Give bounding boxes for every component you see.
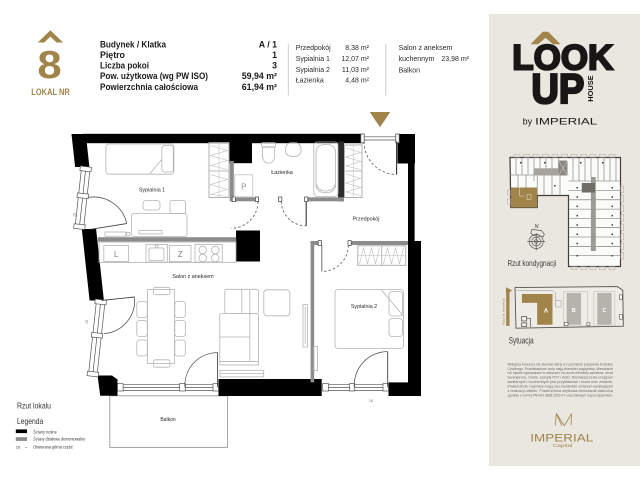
- svg-text:Wjazd ul. Rybowicka: Wjazd ul. Rybowicka: [501, 298, 505, 325]
- svg-text:zgodnie z normą PN-ISO 9836:20: zgodnie z normą PN-ISO 9836:2022-07 oraz…: [508, 393, 614, 397]
- svg-text:Rzut kondygnacji: Rzut kondygnacji: [508, 258, 557, 268]
- svg-text:UP: UP: [531, 65, 584, 112]
- svg-text:nie będzie wyposażone w widocz: nie będzie wyposażone w widoczne na rzuc…: [508, 371, 614, 375]
- svg-text:11,03 m²: 11,03 m²: [342, 67, 370, 74]
- svg-text:Sypialnia 2: Sypialnia 2: [296, 67, 330, 74]
- svg-text:8: 8: [37, 43, 61, 86]
- svg-text:Łazienka: Łazienka: [271, 170, 293, 176]
- svg-text:N: N: [535, 224, 539, 230]
- svg-text:Piętro: Piętro: [100, 50, 126, 60]
- svg-text:16: 16: [16, 445, 21, 450]
- svg-text:HOUSE: HOUSE: [588, 75, 595, 102]
- svg-text:Przedpokój: Przedpokój: [353, 217, 380, 223]
- svg-text:Przedpokój: Przedpokój: [296, 45, 331, 52]
- svg-text:Cywilnego. Przedstawione rzuty: Cywilnego. Przedstawione rzuty mają char…: [508, 367, 614, 371]
- svg-text:Budynek / Klatka: Budynek / Klatka: [100, 39, 166, 49]
- svg-text:4,48 m²: 4,48 m²: [345, 78, 369, 85]
- svg-text:Sypialnia 1: Sypialnia 1: [139, 188, 165, 194]
- svg-text:Sypialnia 2: Sypialnia 2: [351, 304, 377, 310]
- svg-text:1: 1: [272, 50, 277, 60]
- svg-text:Rzut lokalu: Rzut lokalu: [17, 400, 51, 410]
- svg-text:16: 16: [72, 213, 76, 218]
- svg-text:sanitarnych i kuchennych jest: sanitarnych i kuchennych jest przykładow…: [508, 380, 614, 384]
- svg-text:Z: Z: [178, 250, 183, 259]
- svg-text:IMPERIAL: IMPERIAL: [535, 116, 597, 126]
- svg-text:Niniejsza broszura nie stanowi: Niniejsza broszura nie stanowi oferty w …: [508, 362, 614, 366]
- svg-text:Liczba pokoi: Liczba pokoi: [100, 61, 149, 71]
- svg-text:C: C: [602, 308, 606, 314]
- svg-text:Legenda: Legenda: [17, 416, 43, 426]
- svg-text:Salon z aneksem: Salon z aneksem: [172, 274, 214, 280]
- svg-text:Balkon: Balkon: [399, 68, 421, 75]
- svg-text:Otwierana górna część: Otwierana górna część: [33, 445, 73, 450]
- svg-text:wewnętrzne, meble, sprzęty RTV: wewnętrzne, meble, sprzęty RTV i AGD. Ro…: [508, 376, 614, 380]
- svg-text:z realizacji obiektu. Powierzc: z realizacji obiektu. Powierzchnia użytk…: [508, 389, 614, 393]
- svg-text:L: L: [114, 250, 119, 259]
- svg-text:Sytuacja: Sytuacja: [509, 336, 534, 347]
- svg-text:Pow. użytkowa (wg PW ISO): Pow. użytkowa (wg PW ISO): [100, 71, 208, 81]
- svg-text:16: 16: [85, 320, 89, 325]
- svg-text:61,94 m²: 61,94 m²: [242, 82, 277, 92]
- svg-text:P: P: [241, 183, 246, 192]
- svg-text:Salon z aneksem: Salon z aneksem: [399, 45, 453, 52]
- svg-text:Capital: Capital: [553, 443, 573, 448]
- svg-text:Balkon: Balkon: [160, 417, 176, 423]
- svg-text:Powierzchnia całościowa: Powierzchnia całościowa: [100, 82, 198, 92]
- svg-text:kuchennym: kuchennym: [399, 56, 435, 63]
- svg-text:Ściany nośne: Ściany nośne: [33, 429, 57, 434]
- svg-text:3: 3: [272, 61, 277, 71]
- svg-text:Łazienka: Łazienka: [296, 78, 324, 85]
- svg-text:LOKAL NR: LOKAL NR: [31, 86, 70, 97]
- svg-text:8,38 m²: 8,38 m²: [345, 45, 369, 52]
- svg-text:Ściany działowe demontowalne: Ściany działowe demontowalne: [33, 436, 86, 441]
- svg-text:A / 1: A / 1: [259, 39, 277, 49]
- svg-text:Powierzchnie i wymiary mogą ul: Powierzchnie i wymiary mogą ulec niewiel…: [508, 385, 614, 389]
- svg-text:–: –: [25, 445, 28, 450]
- svg-text:by: by: [523, 116, 533, 126]
- svg-text:Sypialnia 1: Sypialnia 1: [296, 56, 330, 63]
- svg-text:12,07 m²: 12,07 m²: [341, 56, 369, 63]
- svg-text:16: 16: [369, 399, 373, 403]
- svg-text:A: A: [544, 308, 549, 314]
- svg-text:59,94 m²: 59,94 m²: [242, 71, 277, 81]
- svg-text:B: B: [572, 308, 576, 314]
- svg-text:23,98 m²: 23,98 m²: [441, 56, 469, 63]
